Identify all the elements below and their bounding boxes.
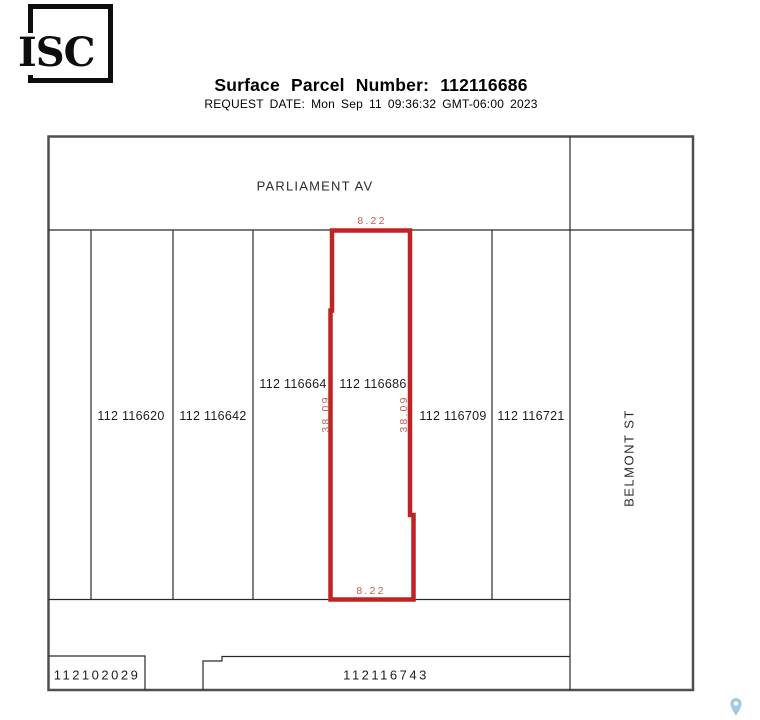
dimension-label-right: 38.09 xyxy=(398,395,410,432)
parcel-label-112116620: 112 116620 xyxy=(97,409,164,423)
parcel-label-112116642: 112 116642 xyxy=(179,409,246,423)
street-label-belmont-st: BELMONT ST xyxy=(622,409,637,507)
parcel-map xyxy=(0,0,760,720)
dimension-label-top: 8.22 xyxy=(357,215,386,227)
dimension-label-left: 38.09 xyxy=(320,395,332,432)
street-label-parliament-av: PARLIAMENT AV xyxy=(257,179,374,194)
parcel-label-112116709: 112 116709 xyxy=(419,409,486,423)
parcel-label-112102029: 112102029 xyxy=(54,668,141,683)
parcel-label-112116664: 112 116664 xyxy=(259,377,326,391)
dimension-label-bottom: 8.22 xyxy=(356,585,385,597)
parcel-label-112116721: 112 116721 xyxy=(497,409,564,423)
parcel-map-page: ISC Surface Parcel Number: 112116686 REQ… xyxy=(0,0,760,720)
parcel-label-112116686: 112 116686 xyxy=(339,377,406,391)
map-pin-icon xyxy=(730,698,741,716)
parcel-label-112116743: 112116743 xyxy=(343,668,429,683)
